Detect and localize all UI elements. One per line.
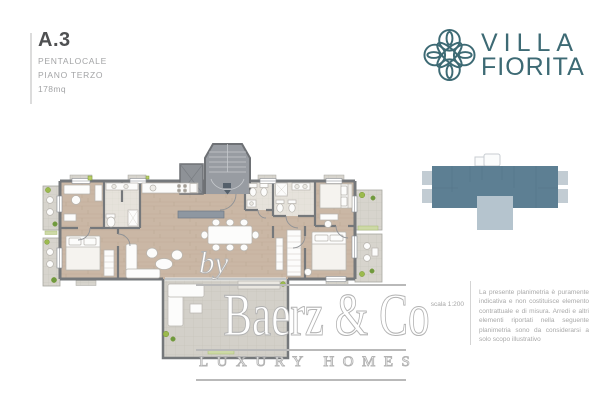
disclaimer-text: La presente planimetria è puramente indi… xyxy=(479,288,589,345)
unit-type: PENTALOCALE xyxy=(38,56,107,66)
watermark-tagline: LUXURY HOMES xyxy=(193,354,409,371)
flower-knot-icon xyxy=(423,27,476,88)
logo-wordmark: VILLA FIORITA xyxy=(481,31,585,79)
footer-divider xyxy=(470,281,471,345)
watermark-brand: Baerz & Co xyxy=(223,286,379,344)
unit-floor: PIANO TERZO xyxy=(38,70,103,80)
keyplan-terrace xyxy=(477,196,513,230)
watermark: by Baerz & Co LUXURY HOMES xyxy=(193,243,409,385)
logo-line-1: VILLA xyxy=(481,31,585,55)
unit-area: 178mq xyxy=(38,84,66,94)
bed-left xyxy=(66,236,100,270)
keyplan xyxy=(418,152,578,237)
watermark-rule-middle xyxy=(196,349,406,351)
brochure-page: A.3 PENTALOCALE PIANO TERZO 178mq VILLA … xyxy=(0,0,600,400)
logo-line-2: FIORITA xyxy=(481,55,585,79)
watermark-rule-bottom xyxy=(196,379,406,381)
bed-top-right xyxy=(320,184,352,208)
header-divider xyxy=(30,33,32,104)
unit-code: A.3 xyxy=(38,29,71,52)
watermark-by: by xyxy=(199,245,228,281)
stairwell xyxy=(205,144,250,195)
